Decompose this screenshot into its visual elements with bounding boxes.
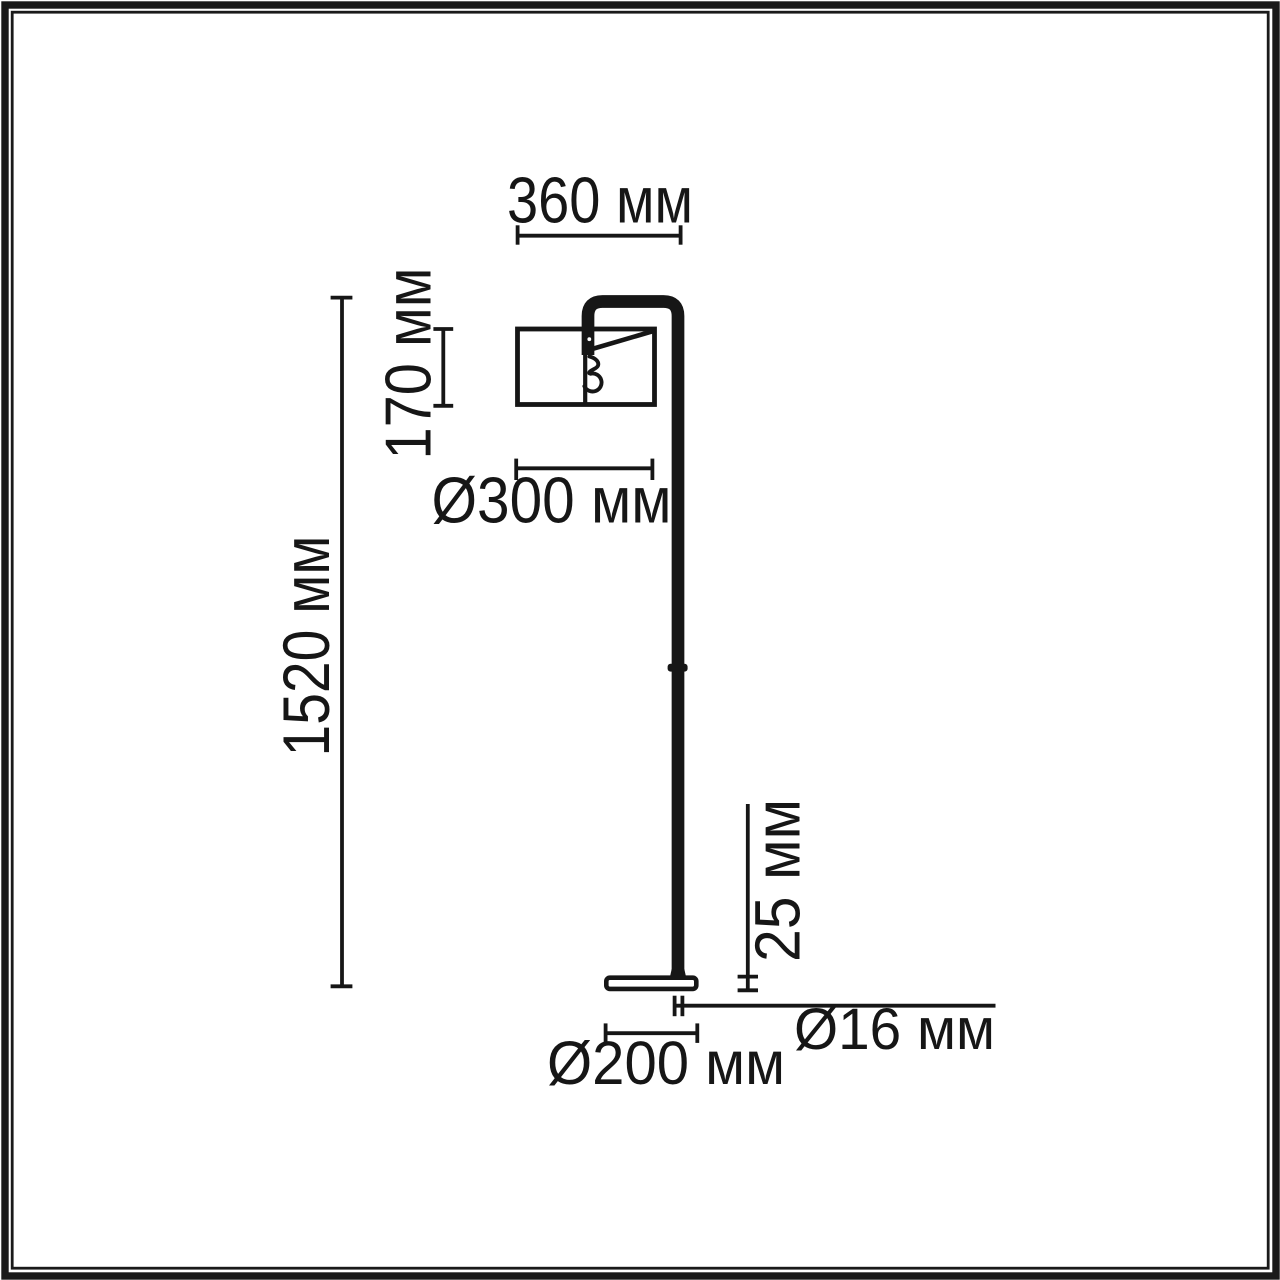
svg-text:25 мм: 25 мм (742, 799, 814, 962)
svg-text:Ø16 мм: Ø16 мм (794, 997, 995, 1062)
svg-text:1520 мм: 1520 мм (269, 536, 343, 757)
svg-text:360 мм: 360 мм (507, 164, 693, 237)
svg-text:170 мм: 170 мм (372, 268, 445, 460)
svg-text:Ø200 мм: Ø200 мм (547, 1029, 785, 1097)
svg-text:Ø300 мм: Ø300 мм (432, 464, 672, 537)
